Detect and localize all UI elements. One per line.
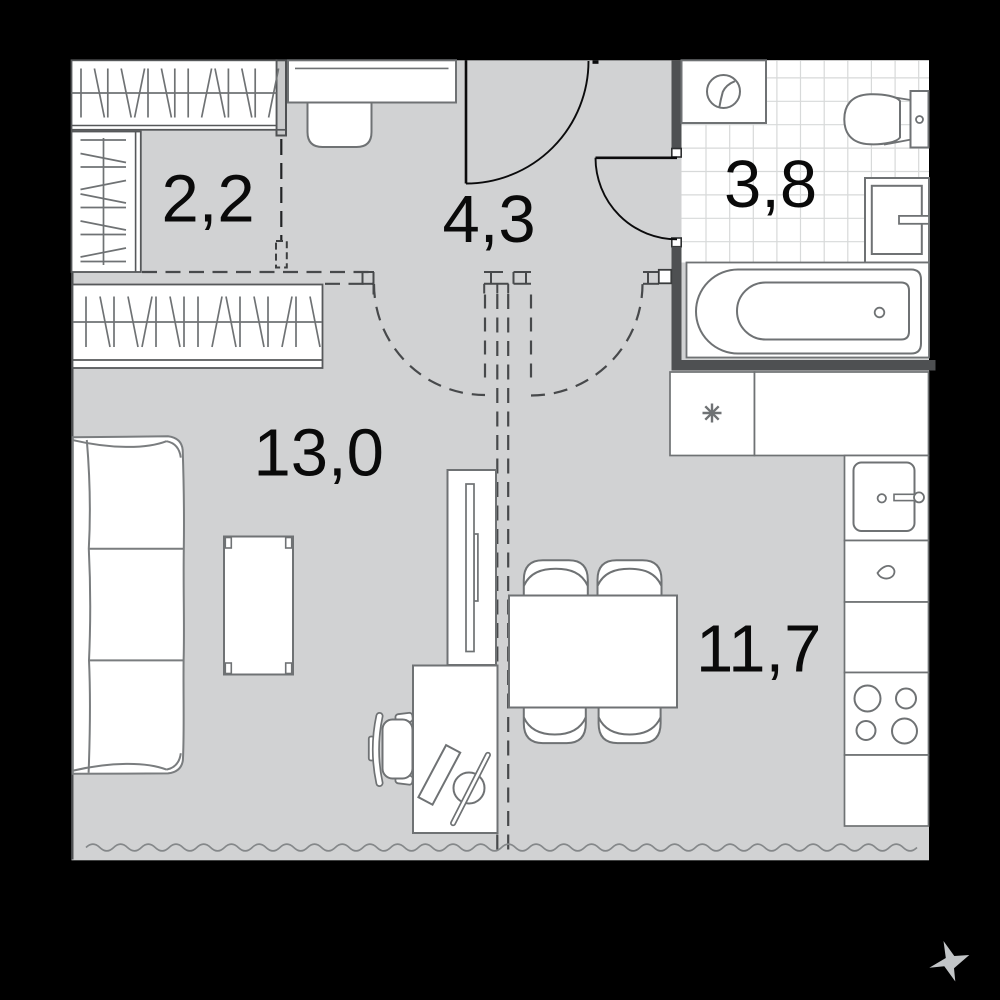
svg-text:13,0: 13,0 <box>254 416 384 491</box>
svg-text:4,3: 4,3 <box>443 182 536 257</box>
svg-text:2,2: 2,2 <box>162 161 255 236</box>
svg-text:11,7: 11,7 <box>696 611 821 686</box>
svg-text:3,8: 3,8 <box>724 147 817 222</box>
